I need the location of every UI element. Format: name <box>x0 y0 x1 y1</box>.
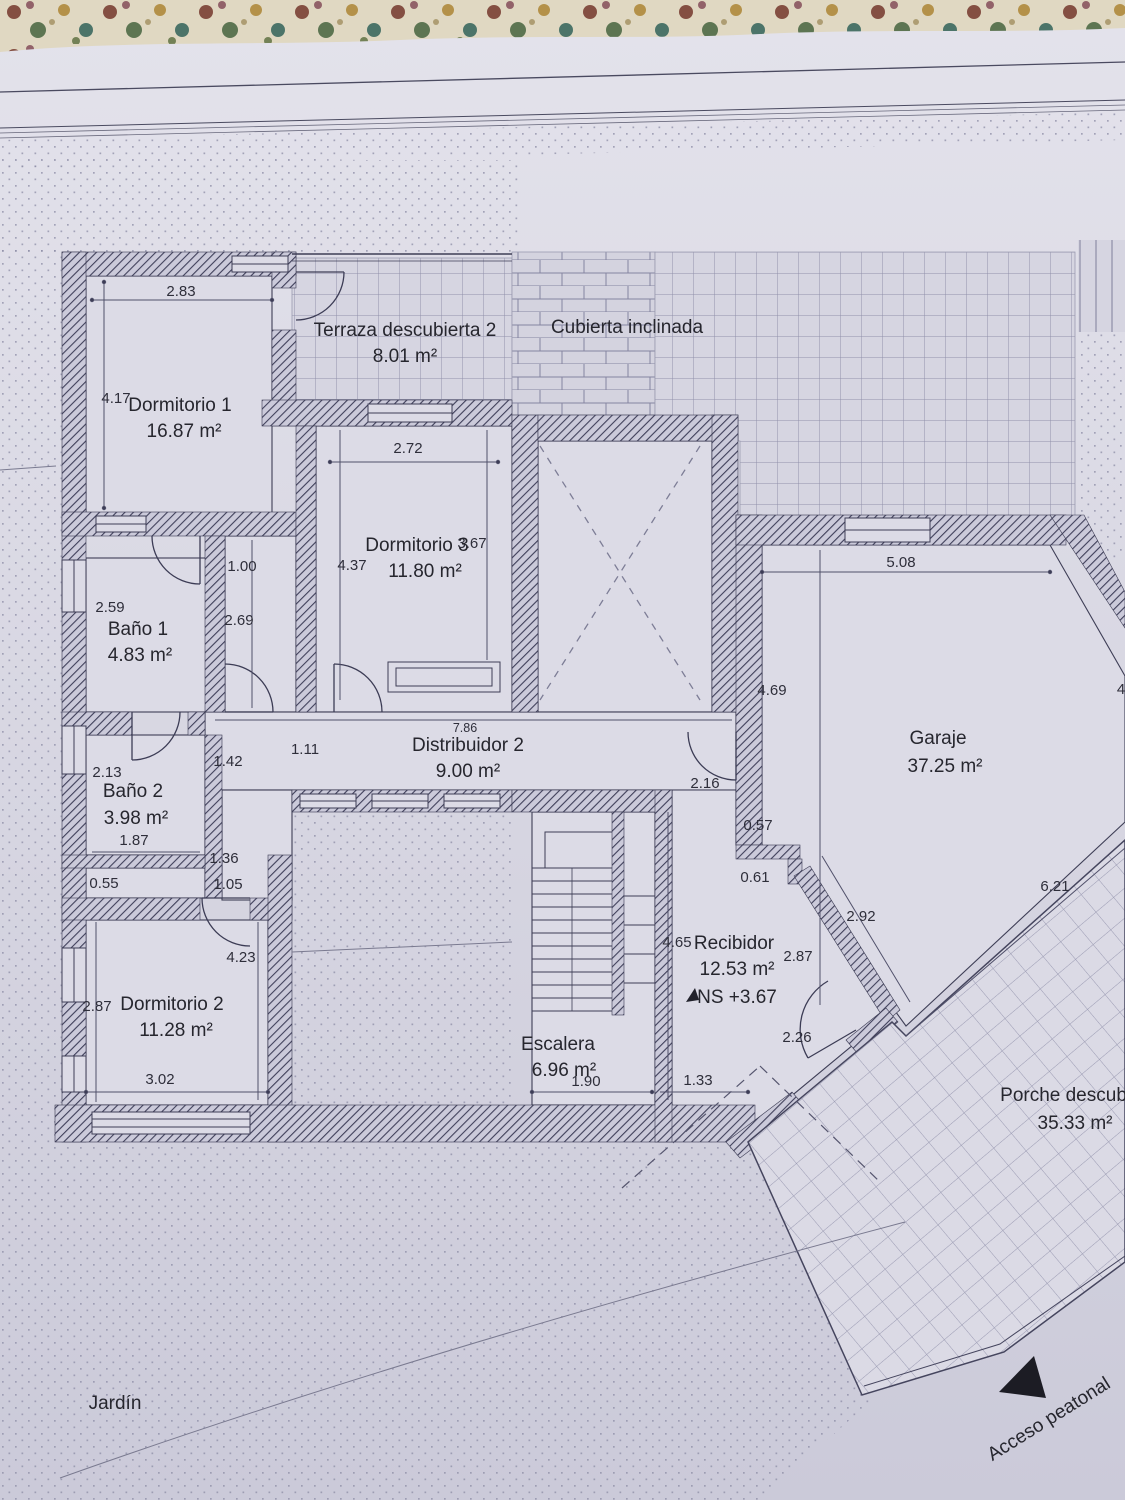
dim-111: 1.11 <box>291 741 319 758</box>
label-bano2-area: 3.98 m² <box>104 808 168 829</box>
dim-786: 7.86 <box>453 721 477 735</box>
window <box>62 1056 86 1092</box>
window <box>300 794 356 808</box>
window <box>62 948 86 1002</box>
dim-061: 0.61 <box>740 869 769 886</box>
label-distribuidor2-name: Distribuidor 2 <box>412 735 524 756</box>
window <box>232 256 288 272</box>
dim-259: 2.59 <box>95 599 124 616</box>
dim-100: 1.00 <box>227 558 256 575</box>
label-dormitorio2-area: 11.28 m² <box>139 1020 213 1041</box>
dim-469: 4.69 <box>757 682 786 699</box>
dim-213: 2.13 <box>92 764 121 781</box>
label-porche-area: 35.33 m² <box>1038 1113 1113 1134</box>
dim-437: 4.37 <box>337 557 366 574</box>
window <box>372 794 428 808</box>
label-escalera-name: Escalera <box>521 1034 595 1055</box>
label-dormitorio2-name: Dormitorio 2 <box>120 994 223 1015</box>
dim-055: 0.55 <box>89 875 118 892</box>
label-bano1-name: Baño 1 <box>108 619 168 640</box>
dim-287b: 2.87 <box>783 948 812 965</box>
label-bano2-name: Baño 2 <box>103 781 163 802</box>
window <box>62 726 86 774</box>
label-jardin: Jardín <box>89 1393 142 1414</box>
dim-216: 2.16 <box>690 775 719 792</box>
window <box>444 794 500 808</box>
room-void <box>538 441 712 712</box>
window-seat <box>388 662 500 692</box>
label-terraza2-name: Terraza descubierta 2 <box>314 320 497 341</box>
label-porche-name: Porche descubierto <box>1000 1085 1125 1106</box>
dim-283: 2.83 <box>166 283 195 300</box>
window <box>368 404 452 422</box>
label-recibidor-name: Recibidor <box>694 933 775 954</box>
dim-292: 2.92 <box>846 908 875 925</box>
dim-465: 4.65 <box>662 934 691 951</box>
label-recibidor-area: 12.53 m² <box>700 959 775 980</box>
label-cubierta-name: Cubierta inclinada <box>551 317 704 338</box>
dim-508: 5.08 <box>886 554 915 571</box>
label-garaje-area: 37.25 m² <box>908 756 983 777</box>
dim-287a: 2.87 <box>82 998 111 1015</box>
dim-187: 1.87 <box>119 832 148 849</box>
label-dormitorio3-name: Dormitorio 3 <box>365 535 468 556</box>
window <box>96 516 146 532</box>
dim-136: 1.36 <box>209 850 238 867</box>
label-garaje-name: Garaje <box>909 728 966 749</box>
dim-4-cutoff: 4 <box>1117 681 1125 698</box>
label-dormitorio1-area: 16.87 m² <box>147 421 222 442</box>
dim-621: 6.21 <box>1040 878 1069 895</box>
label-terraza2-area: 8.01 m² <box>373 346 437 367</box>
dim-272: 2.72 <box>393 440 422 457</box>
window <box>845 518 930 542</box>
label-escalera-area: 6.96 m² <box>532 1060 596 1081</box>
label-bano1-area: 4.83 m² <box>108 645 172 666</box>
dim-133: 1.33 <box>683 1072 712 1089</box>
dim-226: 2.26 <box>782 1029 811 1046</box>
dim-302: 3.02 <box>145 1071 174 1088</box>
dim-423: 4.23 <box>226 949 255 966</box>
window <box>62 560 86 612</box>
striped-band <box>1078 240 1125 332</box>
label-distribuidor2-area: 9.00 m² <box>436 761 500 782</box>
dim-142: 1.42 <box>213 753 242 770</box>
label-dormitorio3-area: 11.80 m² <box>388 561 462 582</box>
dim-269: 2.69 <box>224 612 253 629</box>
window <box>92 1112 250 1134</box>
label-recibidor-level: NS +3.67 <box>697 987 777 1008</box>
label-dormitorio1-name: Dormitorio 1 <box>128 395 231 416</box>
dim-057: 0.57 <box>743 817 772 834</box>
dim-105: 1.05 <box>213 876 242 893</box>
dim-417: 4.17 <box>101 390 130 407</box>
floorplan-photo: 2.83 4.17 2.72 4.37 3.67 1.00 2.59 2.69 … <box>0 0 1125 1500</box>
